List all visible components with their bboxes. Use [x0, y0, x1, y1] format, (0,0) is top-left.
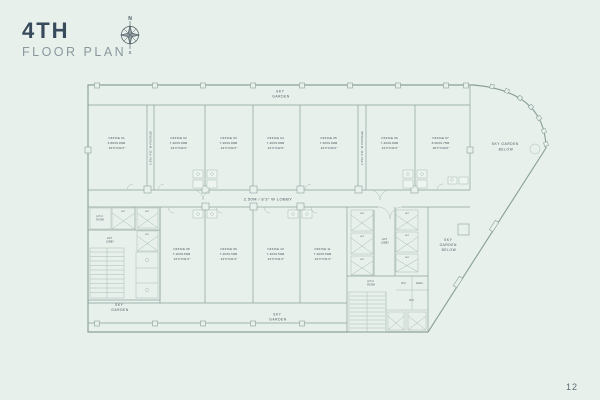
svg-text:LIFT: LIFT — [360, 213, 365, 215]
page: { "page": { "title": "4TH", "subtitle": … — [0, 0, 600, 400]
building-outline — [88, 85, 546, 332]
office-label-top-4: OFFICE 04 7.40X9.80M 24'3"X32'2" — [267, 136, 286, 150]
lobby-width-label: 2.50M / 8'3" W LOBBY — [244, 197, 292, 202]
left-lift-lobby-label: LIFT LOBBY — [106, 238, 115, 244]
door-swings — [127, 184, 443, 219]
sky-garden-left-label: SKY GARDEN — [111, 303, 128, 312]
svg-text:LIFT: LIFT — [405, 213, 410, 215]
office-label-top-7: OFFICE 07 8.00X9.75M 26'3"X32'0" — [432, 136, 451, 150]
office-label-top-1: OFFICE 01 5.80X9.80M 19'0"X32'2" — [108, 136, 127, 150]
sky-garden-strips — [88, 85, 470, 323]
right-core — [347, 207, 428, 332]
svg-text:LIFT: LIFT — [360, 236, 365, 238]
svg-text:LIFT: LIFT — [405, 235, 410, 237]
right-lift-lobby-label: LIFT LOBBY — [381, 239, 390, 245]
wc-label-2: W.C. — [409, 300, 415, 302]
page-number: 12 — [566, 382, 578, 392]
stair-right — [349, 292, 386, 332]
wc-label: W.C. — [401, 283, 407, 285]
office-label-top-6: OFFICE 06 7.40X9.80M 24'3"X32'2" — [381, 136, 400, 150]
ahu-room-right-label: A.H.U ROOM — [367, 280, 375, 287]
passage-width-label-1: 1.5M / 4'11" W PASSAGE — [149, 131, 153, 165]
ahu-room-label: A.H.U ROOM — [96, 215, 104, 222]
svg-text:LIFT: LIFT — [360, 259, 365, 261]
stair-left — [90, 248, 124, 298]
floor-plan: SKY GARDEN SKY GARDEN SKY GARDEN SKY GAR… — [0, 0, 600, 400]
elec-room-label: ELEC. — [416, 283, 423, 285]
sky-garden-below-mid-label: SKY GARDEN BELOW — [440, 238, 459, 252]
office-label-bottom-2: OFFICE 09 7.40X9.50M 24'3"X31'2" — [220, 247, 239, 261]
svg-text:LIFT: LIFT — [145, 211, 150, 213]
office-label-top-3: OFFICE 03 7.40X9.80M 24'3"X32'2" — [220, 136, 239, 150]
office-label-top-5: OFFICE 05 7.40X9.80M 24'3"X32'2" — [320, 136, 339, 150]
passage-width-label-2: 1.5M / 4'11" W PASSAGE — [360, 131, 364, 165]
office-label-bottom-3: OFFICE 10 7.40X9.50M 24'3"X31'2" — [267, 247, 286, 261]
office-label-top-2: OFFICE 02 7.40X9.80M 24'3"X32'2" — [170, 136, 189, 150]
svg-text:LIFT: LIFT — [145, 234, 150, 236]
lift-shaft-labels: LIFT LIFT LIFT LIFT LIFT LIFT LIFT LIFT … — [121, 211, 410, 261]
office-label-bottom-1: OFFICE 08 7.40X9.50M 24'3"X31'2" — [173, 247, 192, 261]
sky-garden-bottom-label: SKY GARDEN — [269, 313, 286, 322]
sky-garden-top-label: SKY GARDEN — [272, 90, 289, 99]
svg-text:LIFT: LIFT — [405, 257, 410, 259]
wc-fixtures — [193, 170, 468, 218]
office-label-bottom-4: OFFICE 11 7.40X9.50M 24'3"X31'2" — [314, 247, 333, 261]
facade-ticks — [453, 84, 548, 288]
svg-text:LIFT: LIFT — [121, 211, 126, 213]
sky-garden-below-right-label: SKY GARDEN BELOW — [492, 142, 521, 152]
